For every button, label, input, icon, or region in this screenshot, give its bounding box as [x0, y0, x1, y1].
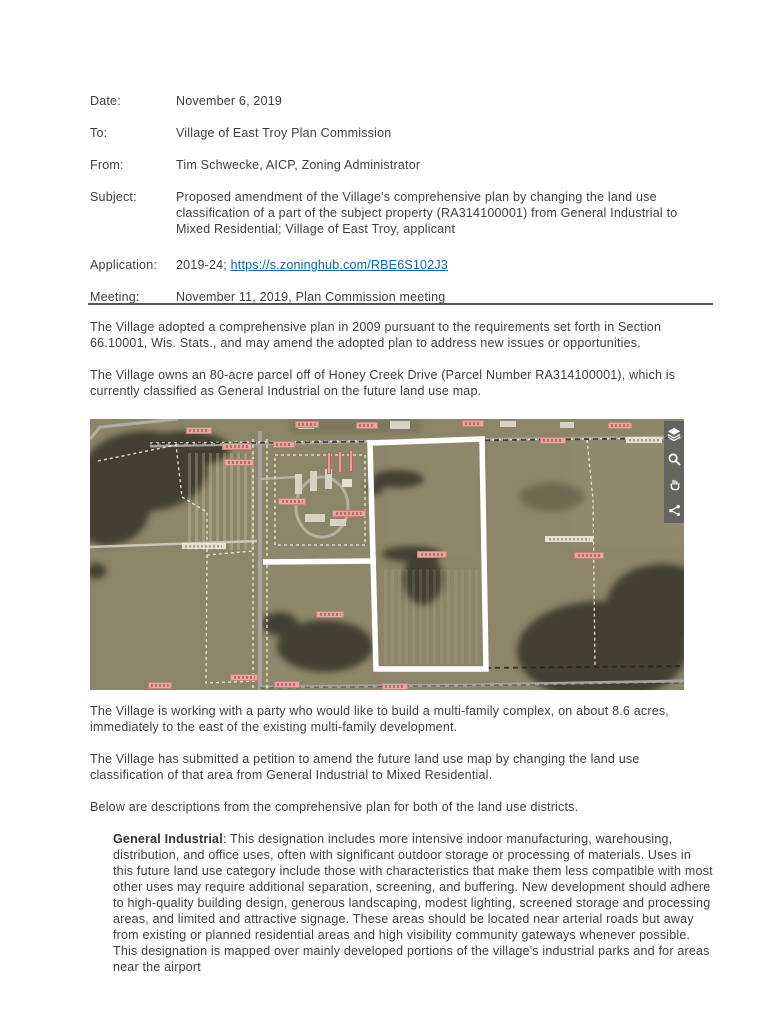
parcel-id-marker — [574, 552, 604, 559]
street-name-marker — [545, 536, 593, 542]
search-icon[interactable] — [666, 451, 682, 467]
paragraph-districts-intro: Below are descriptions from the comprehe… — [90, 799, 712, 815]
map-marker-layer — [90, 419, 684, 690]
field-label-from: From: — [90, 157, 172, 173]
parcel-id-marker — [540, 437, 566, 444]
parcel-id-marker — [230, 674, 258, 681]
parcel-id-marker — [148, 682, 172, 689]
field-label-application: Application: — [90, 257, 172, 273]
district-term: General Industrial — [113, 832, 223, 846]
parcel-id-marker — [332, 510, 366, 517]
field-label-to: To: — [90, 125, 172, 141]
street-name-marker — [626, 437, 662, 443]
aerial-map-image — [90, 419, 684, 690]
parcel-id-marker — [462, 420, 484, 427]
parcel-id-marker — [273, 441, 295, 448]
map-toolbar — [664, 421, 684, 523]
field-value-subject: Proposed amendment of the Village's comp… — [176, 189, 678, 237]
building-bar-marker — [338, 451, 342, 473]
paragraph-petition: The Village has submitted a petition to … — [90, 751, 712, 783]
field-value-from: Tim Schwecke, AICP, Zoning Administrator — [176, 157, 682, 173]
district-text: : This designation includes more intensi… — [113, 832, 713, 974]
field-value-to: Village of East Troy Plan Commission — [176, 125, 682, 141]
application-number: 2019-24; — [176, 258, 231, 272]
paragraph-plan-adoption: The Village adopted a comprehensive plan… — [90, 319, 712, 351]
parcel-id-marker — [274, 681, 300, 688]
memo-page: Date: November 6, 2019 To: Village of Ea… — [0, 0, 770, 1024]
district-description-general-industrial: General Industrial: This designation inc… — [113, 831, 714, 975]
street-name-marker — [182, 543, 226, 549]
parcel-id-marker — [222, 443, 252, 450]
parcel-id-marker — [224, 459, 254, 466]
building-bar-marker — [327, 452, 331, 474]
field-label-date: Date: — [90, 93, 172, 109]
field-label-subject: Subject: — [90, 189, 172, 205]
parcel-id-marker — [417, 551, 447, 558]
parcel-id-marker — [295, 421, 319, 428]
parcel-id-marker — [186, 427, 212, 434]
parcel-id-marker — [278, 498, 306, 505]
layers-icon[interactable] — [666, 426, 682, 442]
parcel-id-marker — [382, 683, 408, 690]
share-icon[interactable] — [666, 502, 682, 518]
paragraph-multifamily-project: The Village is working with a party who … — [90, 703, 712, 735]
application-link[interactable]: https://s.zoninghub.com/RBE6S102J3 — [231, 258, 448, 272]
field-value-application: 2019-24; https://s.zoninghub.com/RBE6S10… — [176, 257, 682, 273]
parcel-id-marker — [316, 611, 344, 618]
field-value-date: November 6, 2019 — [176, 93, 682, 109]
paragraph-parcel-description: The Village owns an 80-acre parcel off o… — [90, 367, 712, 399]
parcel-id-marker — [608, 422, 632, 429]
hand-tool-icon[interactable] — [666, 477, 682, 493]
header-divider — [88, 303, 713, 305]
parcel-id-marker — [356, 422, 378, 429]
building-bar-marker — [349, 450, 353, 472]
